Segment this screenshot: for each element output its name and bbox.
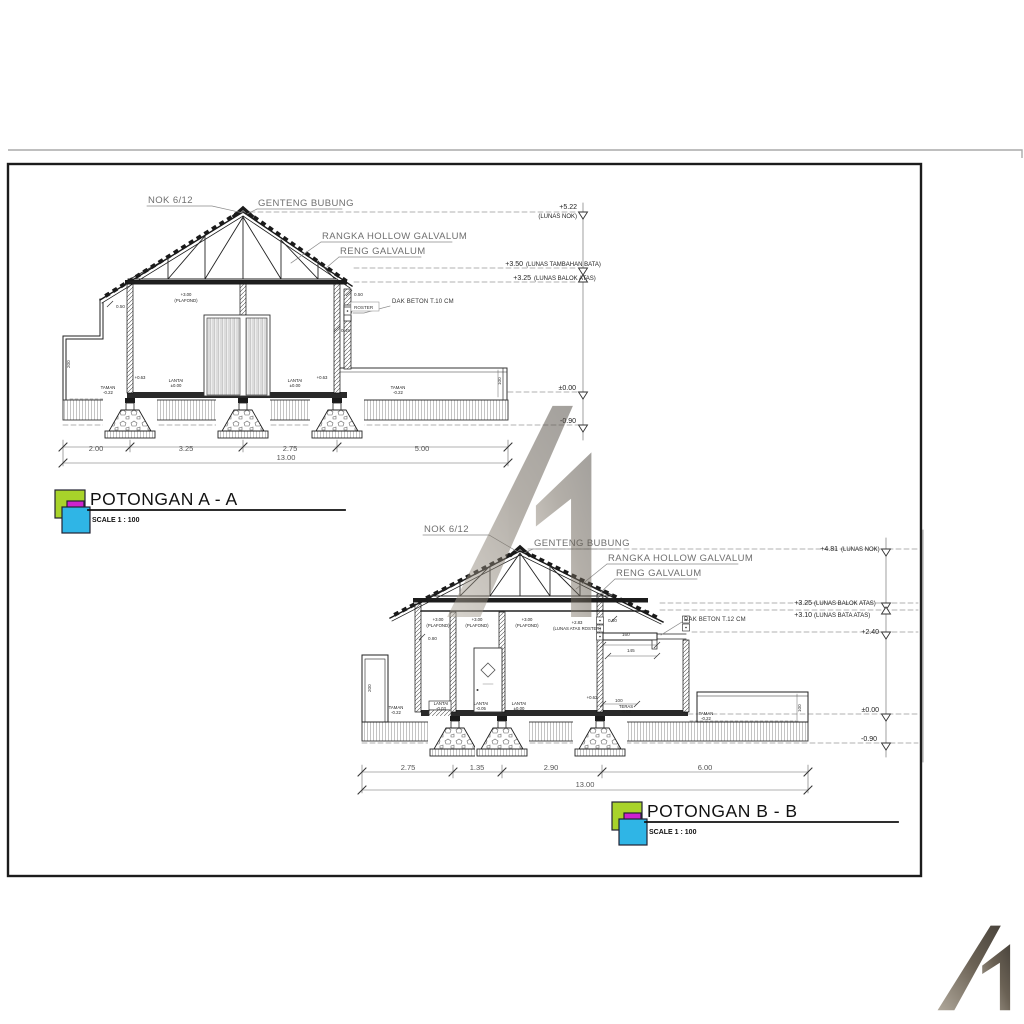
- callout-dak-b: DAK BETON T.12 CM: [684, 617, 746, 623]
- section-b-drawing: NOK 6/12 GENTENG BUBUNG RANGKA HOLLOW GA…: [358, 524, 923, 845]
- sill-level: +0.63: [317, 375, 328, 380]
- lantai-level: -0.05: [476, 706, 486, 711]
- dim-segment: 2.75: [401, 763, 416, 772]
- sheet-edge-line: [8, 150, 1022, 158]
- footing: [475, 716, 529, 757]
- mini-dim: 0.50: [116, 304, 125, 309]
- floor-slab-b: [421, 710, 688, 716]
- taman-level: -0.22: [103, 390, 113, 395]
- dim-segment: 2.90: [544, 763, 559, 772]
- section-title: POTONGAN A - A: [90, 489, 238, 509]
- footing: [573, 716, 627, 757]
- taman-level: -0.22: [701, 716, 711, 721]
- title-block-a: POTONGAN A - A SCALE 1 : 100: [55, 489, 345, 533]
- wall-height-dim: 200: [66, 360, 71, 368]
- scale-label: SCALE 1 : 100: [92, 517, 140, 524]
- roof-a: [100, 208, 352, 303]
- callout-roster-a: ROSTER: [354, 305, 374, 310]
- roof-truss-a: [128, 217, 337, 282]
- callout-rangka-a: RANGKA HOLLOW GALVALUM: [322, 231, 467, 242]
- level-note: (LUNAS NOK): [538, 214, 577, 220]
- plafond-value: +3.00: [181, 292, 192, 297]
- lantai-level: ±0.00: [171, 383, 182, 388]
- dim-segment: 6.00: [698, 763, 713, 772]
- garden-wall-right-b: [697, 692, 808, 722]
- level-value: +2.40: [861, 629, 879, 636]
- corner-logo: [938, 926, 1011, 1011]
- level-value: ±0.00: [559, 385, 577, 392]
- footing: [103, 398, 157, 439]
- mini-dim: 0.45: [341, 328, 350, 333]
- garden-wall-left-a: [63, 299, 103, 400]
- elevation-markers-b: +4.81 (LUNAS NOK) +3.25 (LUNAS BALOK ATA…: [794, 546, 890, 750]
- level-value: ±0.00: [862, 707, 880, 714]
- wall-height-dim: 100: [797, 704, 802, 712]
- level-value: +3.25: [513, 275, 531, 282]
- level-note: (LUNAS BALOK ATAS): [534, 276, 596, 282]
- scale-label: SCALE 1 : 100: [649, 829, 697, 836]
- dim-total: 13.00: [277, 453, 296, 462]
- callout-rangka-b: RANGKA HOLLOW GALVALUM: [608, 553, 753, 564]
- level-value: +3.25: [794, 600, 812, 607]
- dim-segment: 3.25: [179, 444, 194, 453]
- level-value: -0.90: [861, 736, 877, 743]
- plafond-value: +3.00: [472, 617, 483, 622]
- mini-dim: 0.50: [354, 292, 363, 297]
- plafond-value: +3.00: [522, 617, 533, 622]
- mini-dim: 160: [622, 632, 630, 637]
- lantai-level: -0.03: [436, 706, 446, 711]
- plafond-note: (PLAFOND): [426, 623, 450, 628]
- level-value: +5.22: [559, 204, 577, 211]
- callout-reng-b: RENG GALVALUM: [616, 568, 702, 579]
- lantai-level: ±0.00: [514, 706, 525, 711]
- level-value: +4.81: [820, 546, 838, 553]
- garden-wall-left-b: [362, 655, 388, 722]
- callout-dak-a: DAK BETON T.10 CM: [392, 299, 454, 305]
- taman-level: -0.22: [393, 390, 403, 395]
- lantai-level: ±0.00: [290, 383, 301, 388]
- drawing-sheet: NOK 6/12 GENTENG BUBUNG RANGKA HOLLOW GA…: [0, 0, 1024, 1024]
- elevation-markers-a: +5.22 (LUNAS NOK) +3.50 (LUNAS TAMBAHAN …: [505, 204, 601, 432]
- section-title: POTONGAN B - B: [647, 801, 798, 821]
- title-block-b: POTONGAN B - B SCALE 1 : 100: [612, 801, 898, 845]
- plafond-note: (PLAFOND): [465, 623, 489, 628]
- roster-note: (LUNAS ATAS ROSTER): [553, 626, 601, 631]
- dimension-lines-b: 2.75 1.35 2.90 6.00 13.00: [358, 763, 812, 794]
- level-value: +3.50: [505, 261, 523, 268]
- plafond-value: +3.00: [433, 617, 444, 622]
- level-note: (LUNAS NOK): [841, 547, 880, 553]
- level-note: (LUNAS BATA ATAS): [814, 613, 870, 619]
- wall-height-dim: 100: [497, 377, 502, 385]
- callout-nok-a: NOK 6/12: [148, 195, 193, 206]
- teras-level: -0.02: [621, 709, 631, 714]
- door-panel-a: [204, 315, 270, 396]
- taman-level: -0.22: [391, 710, 401, 715]
- footing: [428, 716, 482, 757]
- callout-genteng-a: GENTENG BUBUNG: [258, 198, 354, 209]
- dim-total: 13.00: [576, 780, 595, 789]
- roster-level: +2.83: [572, 620, 583, 625]
- plafond-note: (PLAFOND): [174, 298, 198, 303]
- sill-level: +0.63: [135, 375, 146, 380]
- logo-squares: [55, 490, 90, 533]
- level-note: (LUNAS BALOK ATAS): [814, 601, 876, 607]
- dim-segment: 5.00: [415, 444, 430, 453]
- dim-segment: 1.35: [470, 763, 485, 772]
- mini-dim: 100: [615, 698, 623, 703]
- level-value: +3.10: [794, 612, 812, 619]
- sill-level: +0.63: [587, 695, 598, 700]
- level-note: (LUNAS TAMBAHAN BATA): [526, 262, 601, 268]
- plafond-note: (PLAFOND): [515, 623, 539, 628]
- mini-dim: 0.80: [428, 636, 437, 641]
- mini-dim: 145: [627, 648, 635, 653]
- callout-reng-a: RENG GALVALUM: [340, 246, 426, 257]
- wall-height-dim: 200: [367, 684, 372, 692]
- architectural-drawing: NOK 6/12 GENTENG BUBUNG RANGKA HOLLOW GA…: [0, 0, 1024, 1024]
- dim-segment: 2.75: [283, 444, 298, 453]
- callout-nok-b: NOK 6/12: [424, 524, 469, 535]
- footing: [310, 398, 364, 439]
- dimension-lines-a: 2.00 3.25 2.75 5.00 13.00: [59, 440, 512, 467]
- dim-segment: 2.00: [89, 444, 104, 453]
- terrace-a: [337, 368, 507, 400]
- footing: [216, 398, 270, 439]
- logo-squares: [612, 802, 647, 845]
